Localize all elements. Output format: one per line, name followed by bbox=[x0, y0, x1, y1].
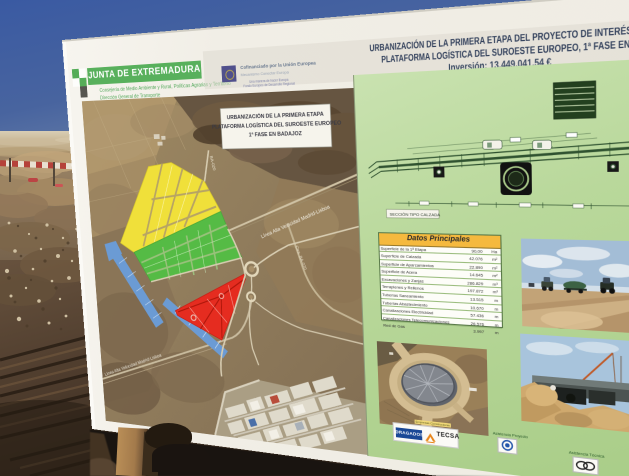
svg-text:SECCIÓN TIPO CALZADA: SECCIÓN TIPO CALZADA bbox=[389, 211, 441, 218]
